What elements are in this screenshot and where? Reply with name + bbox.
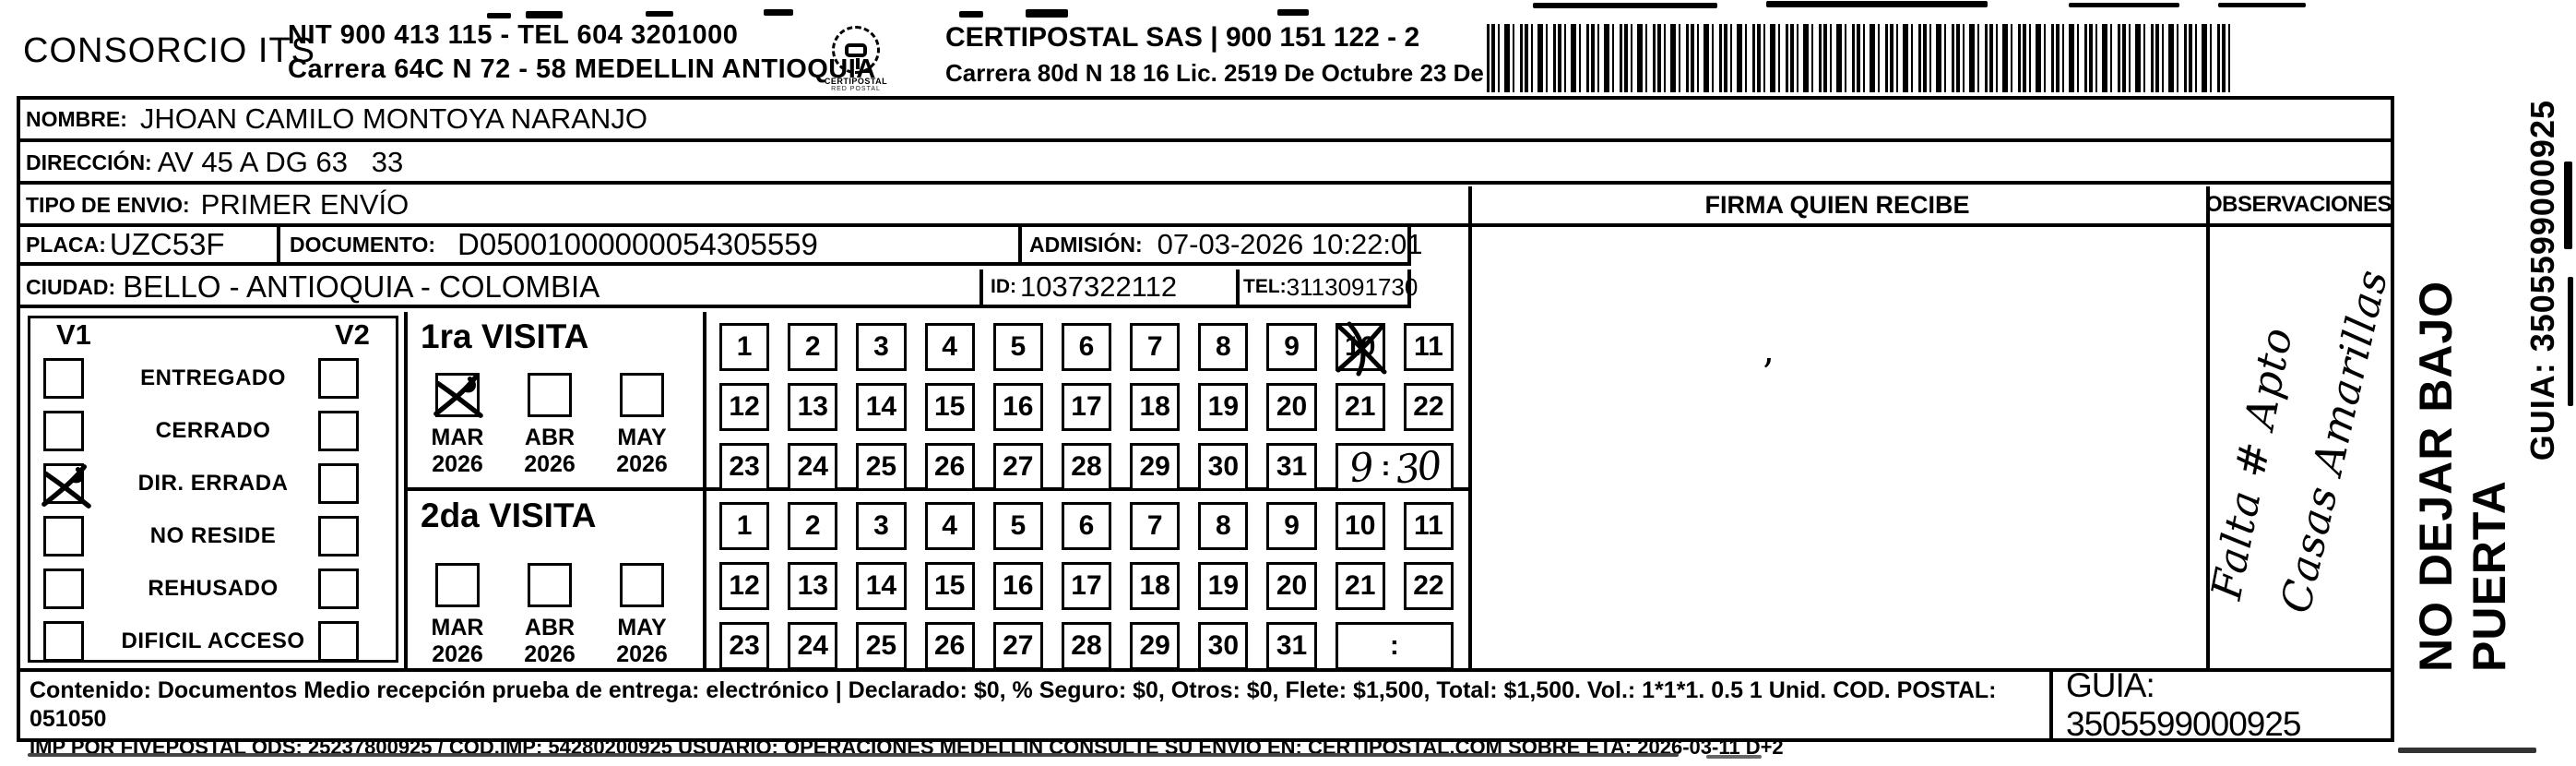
- v1-checkbox[interactable]: [43, 569, 84, 609]
- day-number: 27: [1003, 630, 1033, 662]
- status-label: DIFICIL ACCESO: [108, 628, 318, 654]
- scan-artifact: [2564, 162, 2572, 249]
- logo-ring-icon: [832, 26, 880, 74]
- day-12[interactable]: 12: [719, 562, 769, 610]
- day-number: 25: [866, 451, 896, 483]
- placa-value: UZC53F: [110, 227, 225, 262]
- day-number: 4: [942, 510, 957, 542]
- status-label: ENTREGADO: [108, 365, 318, 391]
- v1-checkbox[interactable]: [43, 411, 84, 451]
- time-colon: :: [1390, 630, 1399, 662]
- certipostal-logo: CERTIPOSTAL RED POSTAL: [824, 26, 888, 92]
- day-number: 20: [1276, 391, 1307, 423]
- v1-column-label: V1: [56, 318, 91, 352]
- side-guia-number: GUIA: 3505599000925: [2523, 100, 2562, 461]
- footer-content-cell: Contenido: Documentos Medio recepción pr…: [20, 672, 2049, 738]
- month-checkbox[interactable]: [435, 563, 480, 607]
- day-17[interactable]: 17: [1062, 383, 1111, 431]
- day-20[interactable]: 20: [1266, 562, 1316, 610]
- month-year: 2026: [616, 451, 668, 478]
- day-number: 11: [1414, 331, 1443, 363]
- day-13[interactable]: 13: [788, 383, 837, 431]
- firma-header: FIRMA QUIEN RECIBE: [1468, 186, 2206, 223]
- tipo-envio-value: PRIMER ENVÍO: [201, 188, 410, 221]
- day-12[interactable]: 12: [719, 383, 769, 431]
- scan-artifact: [2218, 3, 2306, 7]
- carrier-info: CERTIPOSTAL SAS | 900 151 122 - 2 Carrer…: [945, 20, 1544, 90]
- day-number: 3: [873, 331, 889, 363]
- day-23[interactable]: 23: [719, 443, 769, 491]
- day-23[interactable]: 23: [719, 622, 769, 670]
- handwritten-hour: 9: [1347, 443, 1377, 491]
- visit-1-months: MAR2026ABR2026MAY2026: [417, 373, 683, 478]
- visit-1-cell: 1ra VISITA MAR2026ABR2026MAY2026: [408, 312, 703, 487]
- v2-checkbox[interactable]: [318, 463, 359, 504]
- delivery-form-table: NOMBRE: JHOAN CAMILO MONTOYA NARANJO DIR…: [17, 96, 2394, 742]
- day-number: 17: [1071, 570, 1101, 602]
- day-25[interactable]: 25: [856, 443, 906, 491]
- month-year: 2026: [432, 451, 483, 478]
- nombre-label: NOMBRE:: [26, 107, 127, 132]
- day-number: 22: [1413, 570, 1443, 602]
- visit-time-box[interactable]: 9:30: [1335, 443, 1454, 491]
- day-number: 14: [866, 391, 896, 423]
- admision-cell: ADMISIÓN: 07-03-2026 10:22:01: [1022, 227, 1411, 266]
- day-2[interactable]: 2: [788, 502, 837, 550]
- status-row-entregado: ENTREGADO: [30, 352, 396, 404]
- day-number: 1: [737, 510, 753, 542]
- day-10[interactable]: 10: [1335, 502, 1385, 550]
- month-year: 2026: [524, 641, 576, 668]
- day-number: 30: [1208, 630, 1239, 662]
- day-number: 18: [1139, 391, 1169, 423]
- day-7[interactable]: 7: [1130, 502, 1180, 550]
- day-number: 23: [729, 630, 759, 662]
- day-number: 9: [1284, 510, 1300, 542]
- day-24[interactable]: 24: [788, 622, 837, 670]
- day-number: 17: [1071, 391, 1101, 423]
- day-number: 25: [866, 630, 896, 662]
- month-checkbox[interactable]: [435, 373, 480, 417]
- v2-checkbox[interactable]: [318, 569, 359, 609]
- day-number: 21: [1345, 391, 1375, 423]
- company-nit-line: NIT 900 413 115 - TEL 604 3201000: [288, 18, 876, 53]
- month-label: MAY: [617, 425, 666, 451]
- day-number: 31: [1276, 630, 1307, 662]
- day-number: 6: [1079, 331, 1095, 363]
- status-label: DIR. ERRADA: [108, 471, 318, 497]
- day-number: 24: [798, 451, 828, 483]
- day-number: 15: [934, 391, 965, 423]
- delivery-status-box: V1 V2 ENTREGADOCERRADODIR. ERRADANO RESI…: [28, 316, 398, 663]
- day-20[interactable]: 20: [1266, 383, 1316, 431]
- direccion-label: DIRECCIÓN:: [26, 150, 152, 175]
- day-number: 5: [1010, 510, 1026, 542]
- direccion-row: DIRECCIÓN: AV 45 A DG 63 33: [20, 144, 2391, 185]
- month-label: MAR: [432, 425, 484, 451]
- day-number: 11: [1414, 510, 1443, 542]
- scan-artifact: [1766, 1, 1988, 7]
- visit-time-box[interactable]: :: [1335, 622, 1454, 670]
- day-number: 13: [798, 570, 828, 602]
- day-18[interactable]: 18: [1130, 383, 1180, 431]
- visit-2-months: MAR2026ABR2026MAY2026: [417, 563, 683, 668]
- day-3[interactable]: 3: [856, 502, 906, 550]
- day-15[interactable]: 15: [925, 383, 975, 431]
- month-checkbox[interactable]: [528, 373, 572, 417]
- id-cell: ID: 1037322112: [983, 269, 1240, 308]
- day-number: 21: [1345, 570, 1375, 602]
- logo-envelope-icon: [845, 43, 867, 57]
- scan-artifact: [2568, 277, 2573, 406]
- day-number: 12: [729, 570, 759, 602]
- day-16[interactable]: 16: [993, 562, 1043, 610]
- side-margin-note: NO DEJAR BAJO PUERTA GUIA: 3505599000925: [2409, 100, 2562, 672]
- day-22[interactable]: 22: [1404, 383, 1454, 431]
- day-29[interactable]: 29: [1130, 622, 1180, 670]
- day-number: 18: [1139, 570, 1169, 602]
- carrier-address-line: Carrera 80d N 18 16 Lic. 2519 De Octubre…: [945, 55, 1544, 90]
- month-abr: ABR2026: [509, 563, 590, 668]
- month-year: 2026: [432, 641, 483, 668]
- visit-2-cell: 2da VISITA MAR2026ABR2026MAY2026: [408, 491, 703, 668]
- placa-label: PLACA:: [26, 233, 106, 257]
- day-number: 15: [934, 570, 965, 602]
- scan-artifact: [526, 11, 563, 18]
- footer-content-line: Contenido: Documentos Medio recepción pr…: [30, 676, 2049, 734]
- day-4[interactable]: 4: [925, 323, 975, 371]
- month-may: MAY2026: [601, 563, 683, 668]
- day-21[interactable]: 21: [1335, 562, 1385, 610]
- day-8[interactable]: 8: [1198, 323, 1248, 371]
- nombre-row: NOMBRE: JHOAN CAMILO MONTOYA NARANJO: [20, 100, 2391, 142]
- day-3[interactable]: 3: [856, 323, 906, 371]
- day-4[interactable]: 4: [925, 502, 975, 550]
- month-label: MAY: [617, 615, 666, 641]
- day-26[interactable]: 26: [925, 443, 975, 491]
- day-8[interactable]: 8: [1198, 502, 1248, 550]
- no-dejar-bajo-puerta-note: NO DEJAR BAJO PUERTA: [2409, 100, 2516, 672]
- day-number: 6: [1079, 510, 1095, 542]
- visit-2-day-grid: 1234567891011121314151617181920212223242…: [706, 491, 1468, 668]
- status-row-dificil-acceso: DIFICIL ACCESO: [30, 615, 396, 667]
- visit-1-title: 1ra VISITA: [421, 317, 588, 356]
- tel-cell: TEL: 3113091730: [1240, 269, 1411, 308]
- status-label: CERRADO: [108, 418, 318, 444]
- day-number: 24: [798, 630, 828, 662]
- day-5[interactable]: 5: [993, 323, 1043, 371]
- v2-checkbox[interactable]: [318, 516, 359, 557]
- handwritten-x-mark: [40, 460, 93, 513]
- ciudad-cell: CIUDAD: BELLO - ANTIOQUIA - COLOMBIA: [20, 269, 983, 308]
- month-label: ABR: [525, 425, 575, 451]
- day-10[interactable]: 10: [1335, 323, 1385, 371]
- scan-artifact: [959, 11, 983, 18]
- day-number: 23: [729, 451, 759, 483]
- day-28[interactable]: 28: [1062, 443, 1111, 491]
- scan-artifact: [487, 13, 511, 18]
- day-number: 14: [866, 570, 896, 602]
- v1-checkbox[interactable]: [43, 621, 84, 662]
- day-number: 9: [1284, 331, 1300, 363]
- time-colon: :: [1381, 451, 1390, 483]
- documento-label: DOCUMENTO:: [290, 233, 435, 257]
- scan-artifact: [1277, 9, 1309, 16]
- handwritten-scribble-mark: [1331, 318, 1392, 379]
- documento-cell: DOCUMENTO: D05001000000054305559: [280, 227, 1022, 266]
- day-27[interactable]: 27: [993, 622, 1043, 670]
- tipo-envio-label: TIPO DE ENVIO:: [26, 193, 190, 218]
- day-15[interactable]: 15: [925, 562, 975, 610]
- day-number: 22: [1413, 391, 1443, 423]
- nombre-value: JHOAN CAMILO MONTOYA NARANJO: [140, 102, 647, 136]
- v1-checkbox[interactable]: [43, 516, 84, 557]
- day-9[interactable]: 9: [1266, 502, 1316, 550]
- day-31[interactable]: 31: [1266, 622, 1316, 670]
- scan-artifact: [2398, 748, 2536, 753]
- day-number: 10: [1345, 510, 1375, 542]
- day-18[interactable]: 18: [1130, 562, 1180, 610]
- ciudad-label: CIUDAD:: [26, 275, 115, 300]
- day-13[interactable]: 13: [788, 562, 837, 610]
- status-label: REHUSADO: [108, 576, 318, 602]
- scan-artifact: [28, 753, 1679, 757]
- day-29[interactable]: 29: [1130, 443, 1180, 491]
- day-number: 3: [873, 510, 889, 542]
- day-1[interactable]: 1: [719, 502, 769, 550]
- day-9[interactable]: 9: [1266, 323, 1316, 371]
- guia-number: GUIA: 3505599000925: [2053, 672, 2391, 738]
- status-row-rehusado: REHUSADO: [30, 562, 396, 615]
- day-30[interactable]: 30: [1198, 622, 1248, 670]
- month-year: 2026: [524, 451, 576, 478]
- month-label: MAR: [432, 615, 484, 641]
- scan-artifact: [1533, 3, 1717, 8]
- day-number: 28: [1071, 451, 1101, 483]
- tracking-barcode: [1487, 24, 2230, 92]
- scanned-delivery-form: CONSORCIO ITS NIT 900 413 115 - TEL 604 …: [0, 0, 2576, 766]
- logo-text: CERTIPOSTAL: [824, 77, 888, 86]
- day-27[interactable]: 27: [993, 443, 1043, 491]
- day-number: 4: [942, 331, 957, 363]
- observaciones-header: OBSERVACIONES: [2206, 186, 2391, 223]
- day-number: 8: [1216, 510, 1231, 542]
- day-number: 31: [1276, 451, 1307, 483]
- documento-value: D05001000000054305559: [457, 227, 818, 262]
- company-address-line: Carrera 64C N 72 - 58 MEDELLIN ANTIOQUIA: [288, 53, 876, 87]
- logo-subtext: RED POSTAL: [824, 86, 888, 92]
- day-7[interactable]: 7: [1130, 323, 1180, 371]
- day-21[interactable]: 21: [1335, 383, 1385, 431]
- id-value: 1037322112: [1020, 270, 1177, 304]
- status-label: NO RESIDE: [108, 523, 318, 549]
- day-number: 1: [737, 331, 753, 363]
- v2-checkbox[interactable]: [318, 358, 359, 399]
- day-number: 19: [1208, 391, 1239, 423]
- scan-artifact: [1026, 9, 1068, 18]
- day-16[interactable]: 16: [993, 383, 1043, 431]
- day-19[interactable]: 19: [1198, 383, 1248, 431]
- month-mar: MAR2026: [417, 373, 498, 478]
- day-number: 20: [1276, 570, 1307, 602]
- day-14[interactable]: 14: [856, 383, 906, 431]
- admision-label: ADMISIÓN:: [1029, 233, 1143, 257]
- day-number: 13: [798, 391, 828, 423]
- scan-artifact: [1706, 755, 1762, 759]
- v1-checkbox[interactable]: [43, 463, 84, 504]
- month-checkbox[interactable]: [528, 563, 572, 607]
- status-row-cerrado: CERRADO: [30, 404, 396, 457]
- day-31[interactable]: 31: [1266, 443, 1316, 491]
- day-number: 16: [1003, 570, 1033, 602]
- day-1[interactable]: 1: [719, 323, 769, 371]
- day-30[interactable]: 30: [1198, 443, 1248, 491]
- visit-2-title: 2da VISITA: [421, 497, 597, 535]
- scan-artifact: [2069, 3, 2179, 7]
- placa-cell: PLACA: UZC53F: [20, 227, 280, 266]
- month-label: ABR: [525, 615, 575, 641]
- status-row-dir-errada: DIR. ERRADA: [30, 457, 396, 509]
- day-2[interactable]: 2: [788, 323, 837, 371]
- v2-checkbox[interactable]: [318, 621, 359, 662]
- month-may: MAY2026: [601, 373, 683, 478]
- direccion-value: AV 45 A DG 63 33: [158, 146, 404, 179]
- day-number: 7: [1147, 331, 1163, 363]
- day-26[interactable]: 26: [925, 622, 975, 670]
- ink-mark: ’: [1762, 351, 1774, 396]
- day-number: 30: [1208, 451, 1239, 483]
- company-name: CONSORCIO ITS: [23, 31, 315, 71]
- scan-artifact: [764, 9, 793, 16]
- month-abr: ABR2026: [509, 373, 590, 478]
- day-number: 2: [805, 331, 821, 363]
- day-11[interactable]: 11: [1404, 323, 1454, 371]
- tipo-envio-cell: TIPO DE ENVIO: PRIMER ENVÍO: [20, 186, 1468, 223]
- day-25[interactable]: 25: [856, 622, 906, 670]
- day-number: 27: [1003, 451, 1033, 483]
- day-14[interactable]: 14: [856, 562, 906, 610]
- month-checkbox[interactable]: [620, 563, 664, 607]
- day-28[interactable]: 28: [1062, 622, 1111, 670]
- handwritten-minutes: 30: [1394, 442, 1442, 492]
- day-number: 12: [729, 391, 759, 423]
- scan-artifact: [646, 11, 673, 17]
- tel-value: 3113091730: [1287, 273, 1419, 302]
- day-number: 16: [1003, 391, 1033, 423]
- tel-label: TEL:: [1243, 276, 1287, 298]
- day-6[interactable]: 6: [1062, 502, 1111, 550]
- day-number: 19: [1208, 570, 1239, 602]
- handwritten-x-mark: [432, 369, 485, 423]
- v2-checkbox[interactable]: [318, 411, 359, 451]
- day-number: 28: [1071, 630, 1101, 662]
- day-5[interactable]: 5: [993, 502, 1043, 550]
- status-rows: ENTREGADOCERRADODIR. ERRADANO RESIDEREHU…: [30, 352, 396, 667]
- v2-column-label: V2: [335, 318, 370, 352]
- day-number: 29: [1139, 451, 1169, 483]
- day-6[interactable]: 6: [1062, 323, 1111, 371]
- visit-1-day-grid: 1234567891011121314151617181920212223242…: [706, 312, 1468, 487]
- month-year: 2026: [616, 641, 668, 668]
- day-24[interactable]: 24: [788, 443, 837, 491]
- day-11[interactable]: 11: [1404, 502, 1454, 550]
- ciudad-value: BELLO - ANTIOQUIA - COLOMBIA: [123, 269, 599, 305]
- company-info: NIT 900 413 115 - TEL 604 3201000 Carrer…: [288, 18, 876, 87]
- status-row-no-reside: NO RESIDE: [30, 509, 396, 562]
- firma-signature-area[interactable]: [1472, 227, 2206, 668]
- day-19[interactable]: 19: [1198, 562, 1248, 610]
- day-number: 5: [1010, 331, 1026, 363]
- day-17[interactable]: 17: [1062, 562, 1111, 610]
- admision-value: 07-03-2026 10:22:01: [1157, 228, 1423, 261]
- day-number: 26: [934, 630, 965, 662]
- day-number: 2: [805, 510, 821, 542]
- day-22[interactable]: 22: [1404, 562, 1454, 610]
- carrier-name-line: CERTIPOSTAL SAS | 900 151 122 - 2: [945, 20, 1544, 55]
- id-label: ID:: [991, 276, 1016, 298]
- day-number: 26: [934, 451, 965, 483]
- day-number: 29: [1139, 630, 1169, 662]
- day-number: 8: [1216, 331, 1231, 363]
- month-mar: MAR2026: [417, 563, 498, 668]
- month-checkbox[interactable]: [620, 373, 664, 417]
- v1-checkbox[interactable]: [43, 358, 84, 399]
- day-number: 7: [1147, 510, 1163, 542]
